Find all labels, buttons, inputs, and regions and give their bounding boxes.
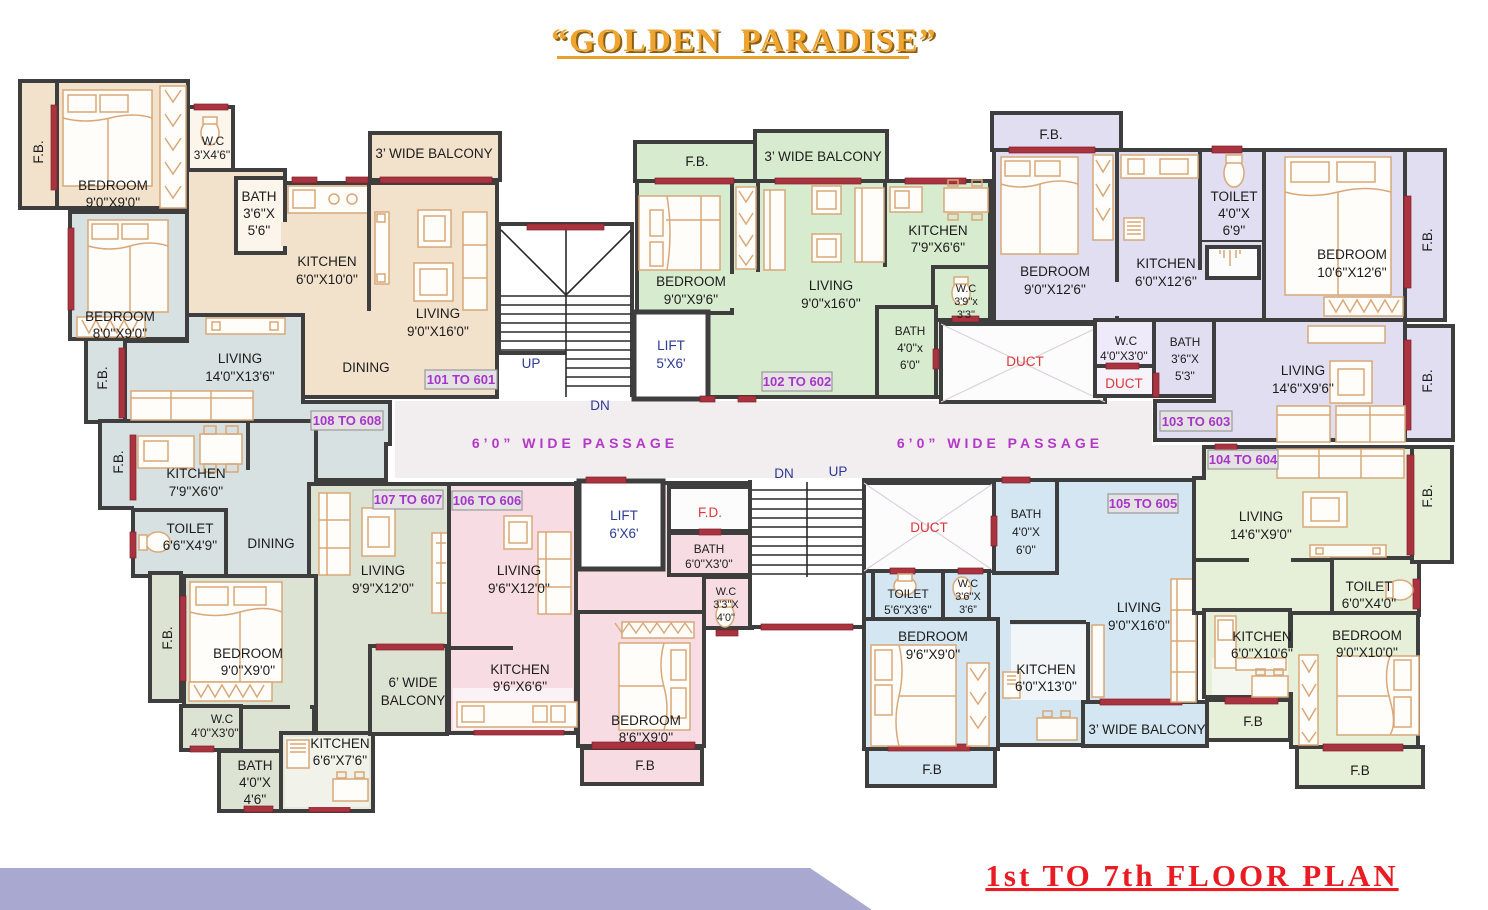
svg-text:F.B.: F.B. — [160, 626, 175, 649]
svg-text:KITCHEN: KITCHEN — [310, 736, 369, 751]
svg-text:6’ WIDE: 6’ WIDE — [388, 675, 437, 690]
svg-text:9'0''X16'0'': 9'0''X16'0'' — [407, 324, 469, 339]
svg-text:6'X6': 6'X6' — [609, 526, 638, 541]
svg-text:6'6''X7'6'': 6'6''X7'6'' — [313, 753, 368, 768]
svg-text:101 TO 601: 101 TO 601 — [427, 372, 495, 387]
svg-text:3’ WIDE BALCONY: 3’ WIDE BALCONY — [1088, 722, 1205, 737]
svg-text:TOILET: TOILET — [887, 587, 928, 601]
svg-text:BATH: BATH — [1170, 335, 1201, 349]
svg-text:4'0''X3'0'': 4'0''X3'0'' — [191, 726, 239, 740]
svg-text:LIVING: LIVING — [497, 563, 541, 578]
svg-text:F.B.: F.B. — [1420, 369, 1435, 392]
svg-text:DUCT: DUCT — [910, 520, 948, 535]
svg-text:F.B: F.B — [1350, 763, 1370, 778]
svg-text:W.C: W.C — [716, 586, 737, 598]
svg-text:LIVING: LIVING — [1281, 363, 1325, 378]
svg-text:3'X4'6'': 3'X4'6'' — [194, 148, 231, 162]
svg-text:14'6''X9'0'': 14'6''X9'0'' — [1230, 527, 1292, 542]
svg-text:9'6''X6'6'': 9'6''X6'6'' — [493, 679, 548, 694]
svg-text:14'6''X9'6'': 14'6''X9'6'' — [1272, 381, 1334, 396]
svg-text:W.C: W.C — [202, 134, 225, 148]
svg-text:KITCHEN: KITCHEN — [1016, 662, 1075, 677]
svg-text:TOILET: TOILET — [1210, 189, 1257, 204]
svg-text:3’ WIDE BALCONY: 3’ WIDE BALCONY — [375, 146, 492, 161]
svg-text:104 TO 604: 104 TO 604 — [1209, 452, 1278, 467]
svg-text:F.B.: F.B. — [685, 154, 708, 169]
svg-text:BATH: BATH — [895, 324, 926, 338]
svg-text:6'0''X10'0'': 6'0''X10'0'' — [296, 272, 358, 287]
svg-text:BEDROOM: BEDROOM — [656, 274, 726, 289]
svg-text:107 TO 607: 107 TO 607 — [374, 492, 442, 507]
svg-text:BEDROOM: BEDROOM — [85, 309, 155, 324]
svg-text:BEDROOM: BEDROOM — [78, 178, 148, 193]
svg-text:9'6''X12'0'': 9'6''X12'0'' — [488, 581, 550, 596]
svg-text:KITCHEN: KITCHEN — [908, 223, 967, 238]
svg-text:DN: DN — [590, 398, 610, 413]
svg-text:BEDROOM: BEDROOM — [1020, 264, 1090, 279]
svg-text:9'0''x16'0'': 9'0''x16'0'' — [801, 296, 861, 311]
svg-text:BEDROOM: BEDROOM — [1332, 628, 1402, 643]
svg-text:4'0''X3'0'': 4'0''X3'0'' — [1100, 349, 1148, 363]
svg-text:4'0''X: 4'0''X — [1012, 525, 1040, 539]
svg-text:BATH: BATH — [1011, 507, 1042, 521]
svg-text:9'6''X9'0'': 9'6''X9'0'' — [906, 647, 961, 662]
svg-text:BEDROOM: BEDROOM — [1317, 247, 1387, 262]
svg-text:F.B: F.B — [922, 762, 942, 777]
svg-text:6'0''X4'0'': 6'0''X4'0'' — [1342, 596, 1397, 611]
svg-text:DINING: DINING — [342, 360, 389, 375]
svg-text:3'6''X: 3'6''X — [955, 591, 980, 603]
svg-text:8'6''X9'0'': 8'6''X9'0'' — [619, 730, 674, 745]
svg-text:LIFT: LIFT — [610, 508, 638, 523]
svg-text:LIVING: LIVING — [218, 351, 262, 366]
svg-text:“GOLDEN PARADISE”: “GOLDEN PARADISE” — [551, 23, 937, 59]
svg-text:KITCHEN: KITCHEN — [166, 466, 225, 481]
svg-text:4'0''x: 4'0''x — [897, 341, 923, 355]
svg-text:6'0''X12'6'': 6'0''X12'6'' — [1135, 274, 1197, 289]
svg-text:6'0'': 6'0'' — [1016, 543, 1036, 557]
svg-text:F.B.: F.B. — [1420, 484, 1435, 507]
svg-text:W.C: W.C — [1115, 334, 1138, 348]
svg-text:BALCONY: BALCONY — [381, 693, 446, 708]
svg-text:W.C: W.C — [211, 712, 234, 726]
svg-text:BATH: BATH — [237, 758, 272, 773]
svg-text:9'0''X9'0'': 9'0''X9'0'' — [86, 195, 141, 210]
svg-text:BATH: BATH — [694, 542, 725, 556]
svg-text:KITCHEN: KITCHEN — [1232, 629, 1291, 644]
svg-text:3'6”: 3'6” — [959, 604, 977, 616]
svg-text:F.D.: F.D. — [698, 505, 722, 520]
svg-text:F.B.: F.B. — [95, 366, 110, 389]
svg-text:4'0''X: 4'0''X — [239, 775, 271, 790]
svg-text:W.C: W.C — [958, 578, 979, 590]
svg-text:5'X6': 5'X6' — [656, 356, 685, 371]
svg-text:9'0''X16'0'': 9'0''X16'0'' — [1108, 618, 1170, 633]
svg-text:LIFT: LIFT — [657, 338, 685, 353]
svg-text:KITCHEN: KITCHEN — [1136, 256, 1195, 271]
svg-text:BEDROOM: BEDROOM — [898, 629, 968, 644]
svg-text:DUCT: DUCT — [1006, 354, 1044, 369]
svg-text:6'6''X4'9'': 6'6''X4'9'' — [163, 538, 218, 553]
svg-text:103 TO 603: 103 TO 603 — [1162, 414, 1230, 429]
svg-text:F.B.: F.B. — [1420, 228, 1435, 251]
svg-text:BATH: BATH — [241, 189, 276, 204]
svg-text:5'6'': 5'6'' — [248, 223, 271, 238]
svg-text:105 TO 605: 105 TO 605 — [1109, 496, 1177, 511]
svg-text:6'0''X3'0'': 6'0''X3'0'' — [685, 557, 733, 571]
svg-text:9'0''X9'6'': 9'0''X9'6'' — [664, 292, 719, 307]
svg-text:6'0''X13'0'': 6'0''X13'0'' — [1015, 679, 1077, 694]
svg-text:6’0” WIDE PASSAGE: 6’0” WIDE PASSAGE — [897, 435, 1103, 451]
svg-text:5'6''X3'6'': 5'6''X3'6'' — [884, 603, 932, 617]
svg-text:F.B.: F.B. — [31, 140, 46, 163]
svg-text:BEDROOM: BEDROOM — [611, 713, 681, 728]
svg-text:LIVING: LIVING — [1239, 509, 1283, 524]
svg-text:106 TO 606: 106 TO 606 — [453, 493, 521, 508]
svg-text:3'6''X: 3'6''X — [1171, 352, 1199, 366]
svg-text:6'0'': 6'0'' — [900, 358, 920, 372]
svg-text:LIVING: LIVING — [416, 306, 460, 321]
svg-text:4'0'': 4'0'' — [717, 612, 735, 624]
svg-text:F.B.: F.B. — [111, 450, 126, 473]
svg-text:DN: DN — [774, 466, 794, 481]
svg-text:F.B: F.B — [635, 758, 655, 773]
svg-text:TOILET: TOILET — [1345, 579, 1392, 594]
svg-text:9'0''X9'0'': 9'0''X9'0'' — [221, 663, 276, 678]
svg-text:3’ WIDE BALCONY: 3’ WIDE BALCONY — [764, 149, 881, 164]
svg-text:7'9''X6'6'': 7'9''X6'6'' — [911, 240, 966, 255]
svg-text:W.C: W.C — [956, 283, 977, 295]
svg-text:9'0''X12'6'': 9'0''X12'6'' — [1024, 282, 1086, 297]
svg-text:6'0''X10'6'': 6'0''X10'6'' — [1231, 646, 1293, 661]
svg-text:6’0” WIDE PASSAGE: 6’0” WIDE PASSAGE — [472, 435, 678, 451]
svg-text:6'9'': 6'9'' — [1223, 223, 1246, 238]
svg-text:4'0''X: 4'0''X — [1218, 206, 1250, 221]
svg-text:KITCHEN: KITCHEN — [490, 662, 549, 677]
svg-text:DUCT: DUCT — [1105, 376, 1143, 391]
svg-text:F.B: F.B — [1243, 714, 1263, 729]
svg-text:1st TO 7th FLOOR PLAN: 1st TO 7th FLOOR PLAN — [985, 858, 1398, 893]
svg-text:108 TO 608: 108 TO 608 — [313, 413, 381, 428]
svg-text:LIVING: LIVING — [1117, 600, 1161, 615]
svg-text:DINING: DINING — [247, 536, 294, 551]
svg-text:5'3'': 5'3'' — [1175, 369, 1195, 383]
svg-text:TOILET: TOILET — [166, 521, 213, 536]
svg-text:3'3'': 3'3'' — [957, 309, 975, 321]
svg-text:3'9''x: 3'9''x — [954, 296, 978, 308]
svg-text:14'0''X13'6'': 14'0''X13'6'' — [205, 369, 275, 384]
svg-text:9'0''X10'0'': 9'0''X10'0'' — [1336, 645, 1398, 660]
svg-text:BEDROOM: BEDROOM — [213, 646, 283, 661]
svg-text:10'6''X12'6'': 10'6''X12'6'' — [1317, 265, 1387, 280]
svg-text:UP: UP — [522, 356, 541, 371]
svg-text:4'6'': 4'6'' — [244, 792, 267, 807]
svg-text:3'6''X: 3'6''X — [243, 206, 275, 221]
svg-text:9'9''X12'0'': 9'9''X12'0'' — [352, 581, 414, 596]
svg-text:F.B.: F.B. — [1039, 127, 1062, 142]
svg-text:3'3''X: 3'3''X — [713, 599, 738, 611]
svg-text:LIVING: LIVING — [361, 563, 405, 578]
svg-text:102 TO 602: 102 TO 602 — [763, 374, 831, 389]
svg-text:7'9''X6'0'': 7'9''X6'0'' — [169, 484, 224, 499]
svg-text:KITCHEN: KITCHEN — [297, 254, 356, 269]
svg-text:8'0''X9'0'': 8'0''X9'0'' — [93, 326, 148, 341]
svg-text:LIVING: LIVING — [809, 278, 853, 293]
svg-text:UP: UP — [829, 464, 848, 479]
